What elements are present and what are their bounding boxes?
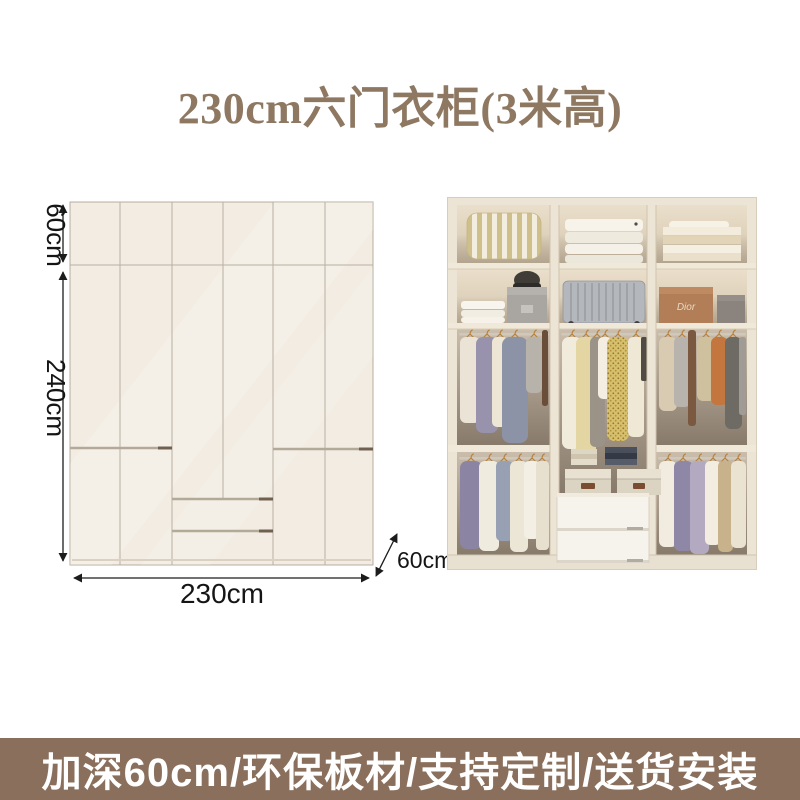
folded-blanket-stack — [663, 221, 741, 261]
page-title: 230cm六门衣柜(3米高) — [0, 72, 800, 136]
feature-banner-text: 加深60cm/环保板材/支持定制/送货安装 — [42, 740, 759, 798]
striped-pillow — [467, 213, 541, 259]
brand-box: Dior — [659, 287, 713, 323]
dim-body-height-label: 240cm — [41, 359, 71, 437]
hanging-clothes-lower-right — [659, 461, 746, 554]
towel-stack — [461, 301, 505, 323]
dim-depth-label: 60cm — [397, 547, 453, 573]
drawer-handle — [627, 559, 643, 562]
drawer-unit — [557, 493, 649, 563]
folded-duvet-stack — [565, 219, 643, 263]
gray-box — [717, 295, 745, 323]
drawer-handle — [627, 527, 643, 530]
brand-box-label: Dior — [677, 302, 696, 313]
hanging-clothes-lower-left — [460, 461, 549, 552]
dim-width-label: 230cm — [180, 578, 264, 609]
suitcase — [563, 281, 645, 327]
dim-top-height-label: 60cm — [41, 203, 71, 267]
product-card: 230cm六门衣柜(3米高) — [0, 0, 800, 800]
dimension-diagram: 60cm 240cm 230cm 60cm — [20, 190, 465, 615]
feature-banner: 加深60cm/环保板材/支持定制/送货安装 — [0, 738, 800, 800]
wardrobe-photo: Dior — [447, 197, 757, 570]
